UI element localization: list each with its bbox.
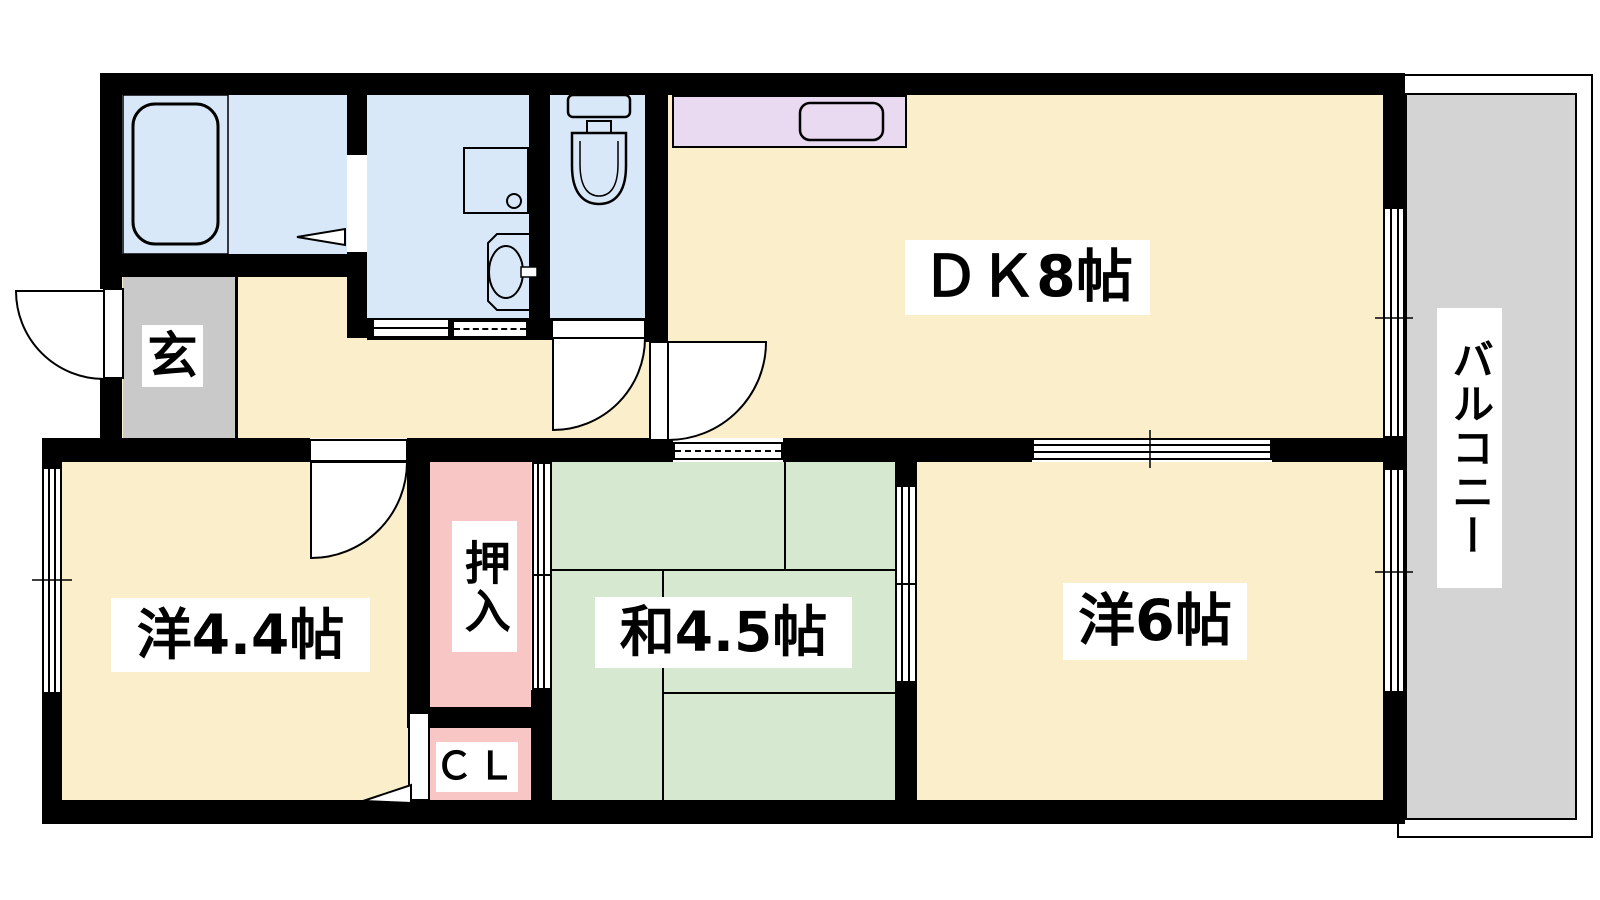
toilet-hinge [587, 121, 611, 133]
room-label-dk: ＤＫ8帖 [905, 240, 1150, 315]
washbasin-faucet [521, 267, 537, 277]
toilet-tank [568, 95, 630, 117]
floor-plan: ＤＫ8帖 洋4.4帖 和4.5帖 洋6帖 玄 押入 ＣＬ バルコニー [0, 0, 1600, 900]
room-label-japanese-4-5: 和4.5帖 [595, 597, 852, 668]
closet-door-marker [363, 785, 411, 803]
entrance-door-swing [16, 291, 104, 379]
room-label-genkan: 玄 [142, 325, 203, 387]
bathroom-door-marker [297, 229, 345, 245]
room-label-oshiire: 押入 [452, 521, 517, 652]
room-label-balcony: バルコニー [1437, 308, 1502, 588]
kitchen-sink [800, 103, 883, 140]
toilet-door-swing [553, 338, 645, 430]
toilet-seat-line [580, 141, 618, 196]
bathtub [133, 104, 218, 244]
washing-machine-pan [464, 148, 528, 213]
fixtures-layer [0, 0, 1600, 900]
washbasin-bowl [489, 246, 523, 298]
dk-door-leaf [650, 342, 668, 440]
room-label-western-6: 洋6帖 [1063, 583, 1247, 660]
room-door-leaf [310, 440, 407, 461]
bath-enclosure [123, 95, 228, 254]
room-label-closet: ＣＬ [436, 742, 518, 792]
dk-door-swing [668, 342, 766, 440]
washing-machine-drain [507, 194, 521, 208]
room-label-western-4-4: 洋4.4帖 [111, 598, 370, 672]
toilet-door-leaf [552, 320, 645, 338]
entrance-door-leaf [104, 289, 123, 378]
room-door-swing [311, 462, 407, 558]
